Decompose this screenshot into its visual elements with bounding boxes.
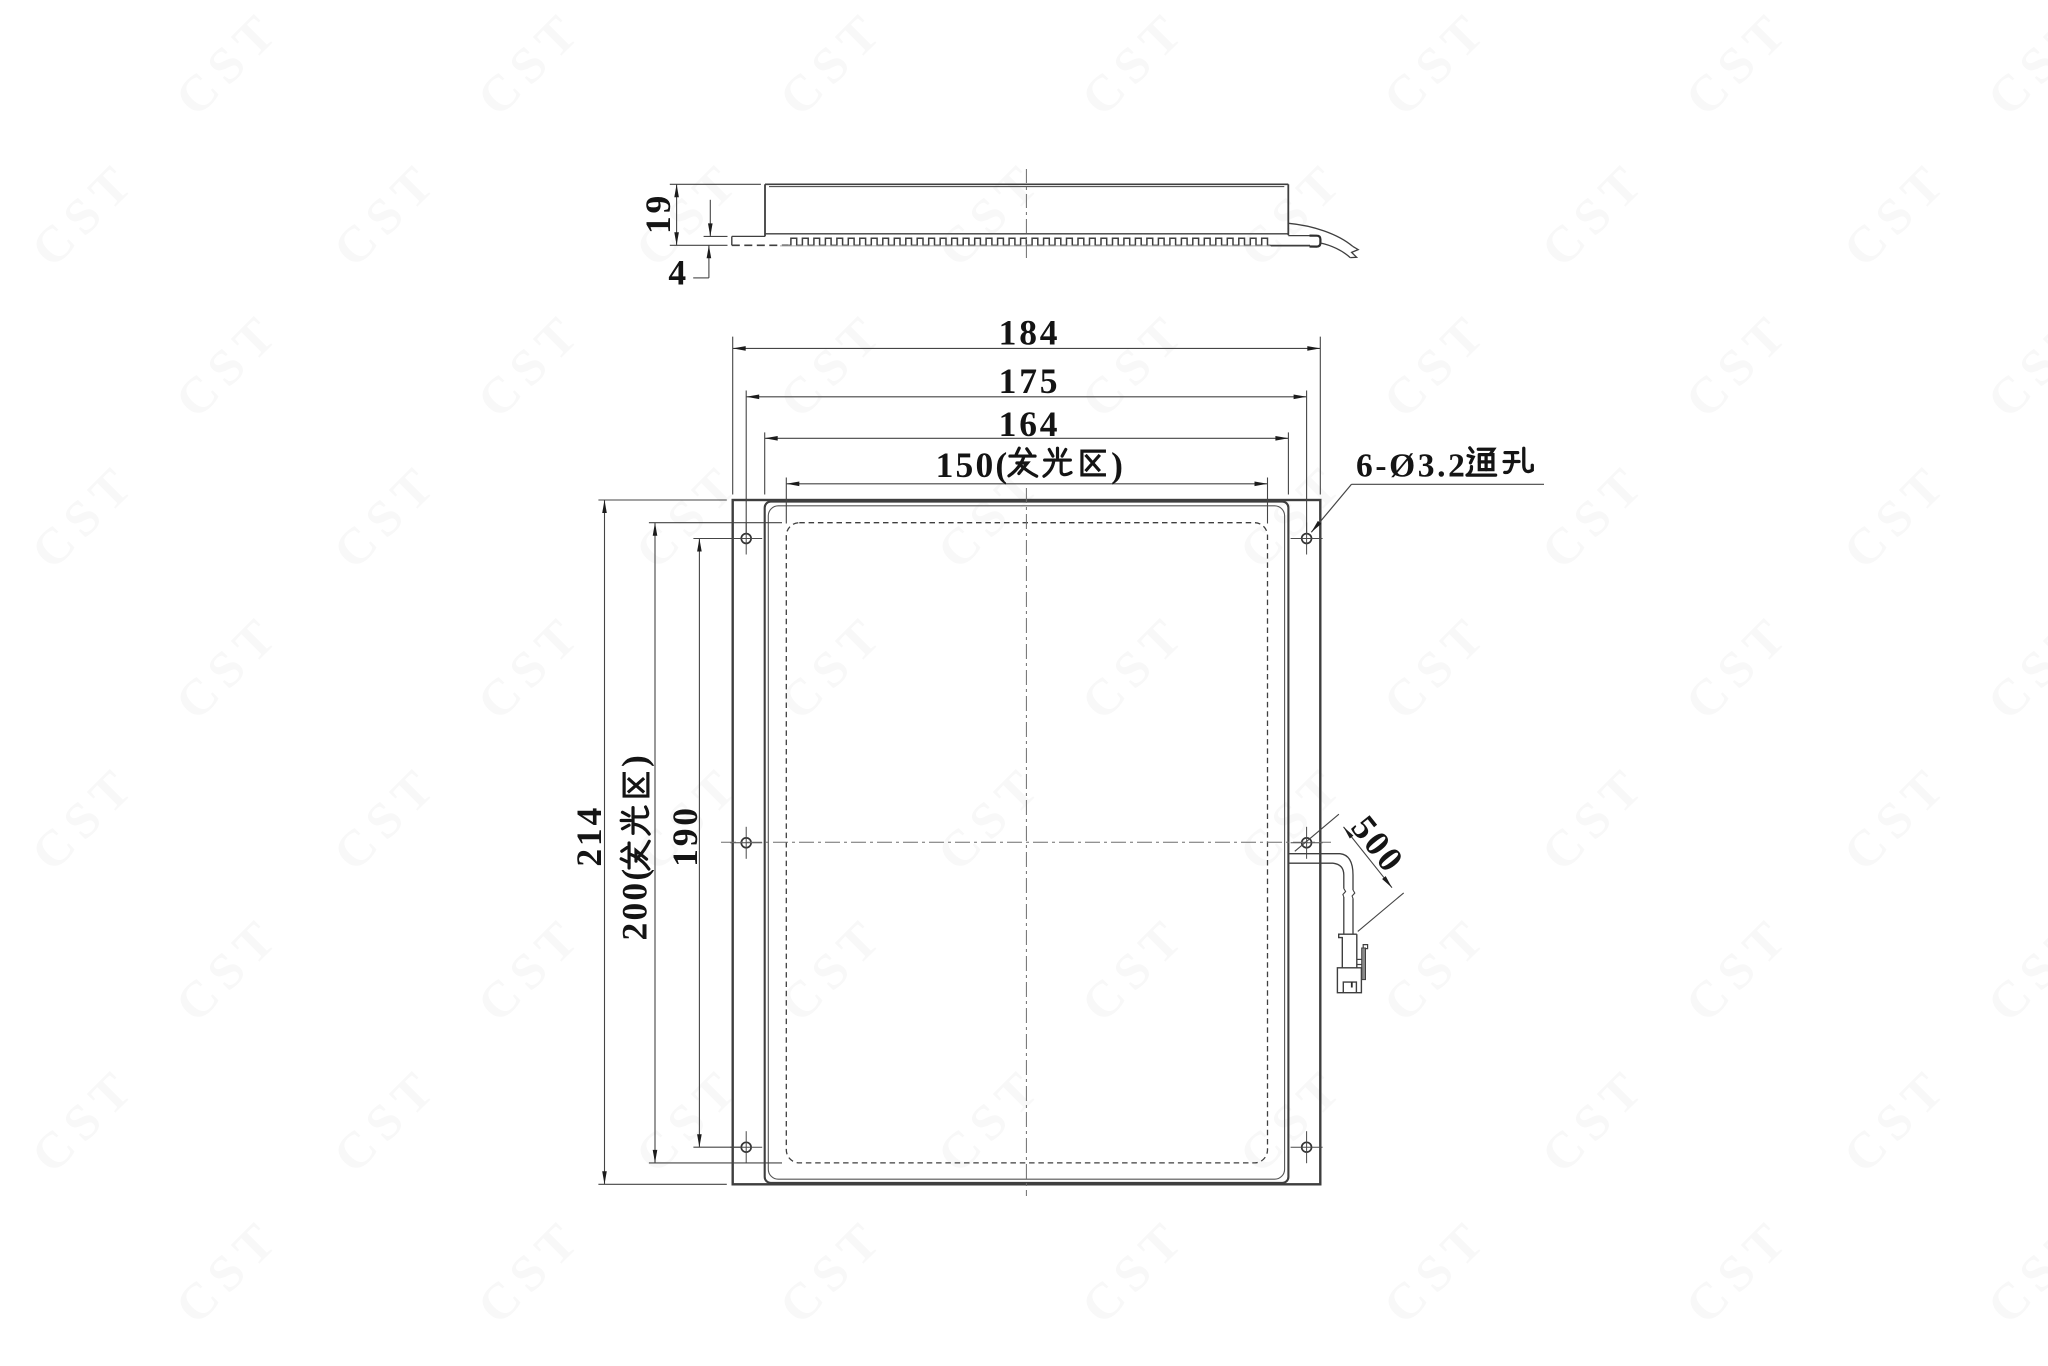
svg-text:190: 190 [665,805,705,867]
svg-text:150(: 150( [936,445,1010,485]
svg-text:164: 164 [999,404,1061,444]
svg-text:): ) [1111,445,1123,485]
svg-text:184: 184 [999,313,1061,353]
svg-text:6-Ø3.2: 6-Ø3.2 [1356,448,1467,485]
svg-text:4: 4 [668,253,689,293]
svg-text:200(: 200( [615,867,655,941]
svg-text:175: 175 [999,361,1061,401]
svg-text:19: 19 [638,193,678,234]
svg-text:214: 214 [569,805,609,867]
svg-text:): ) [615,755,655,767]
